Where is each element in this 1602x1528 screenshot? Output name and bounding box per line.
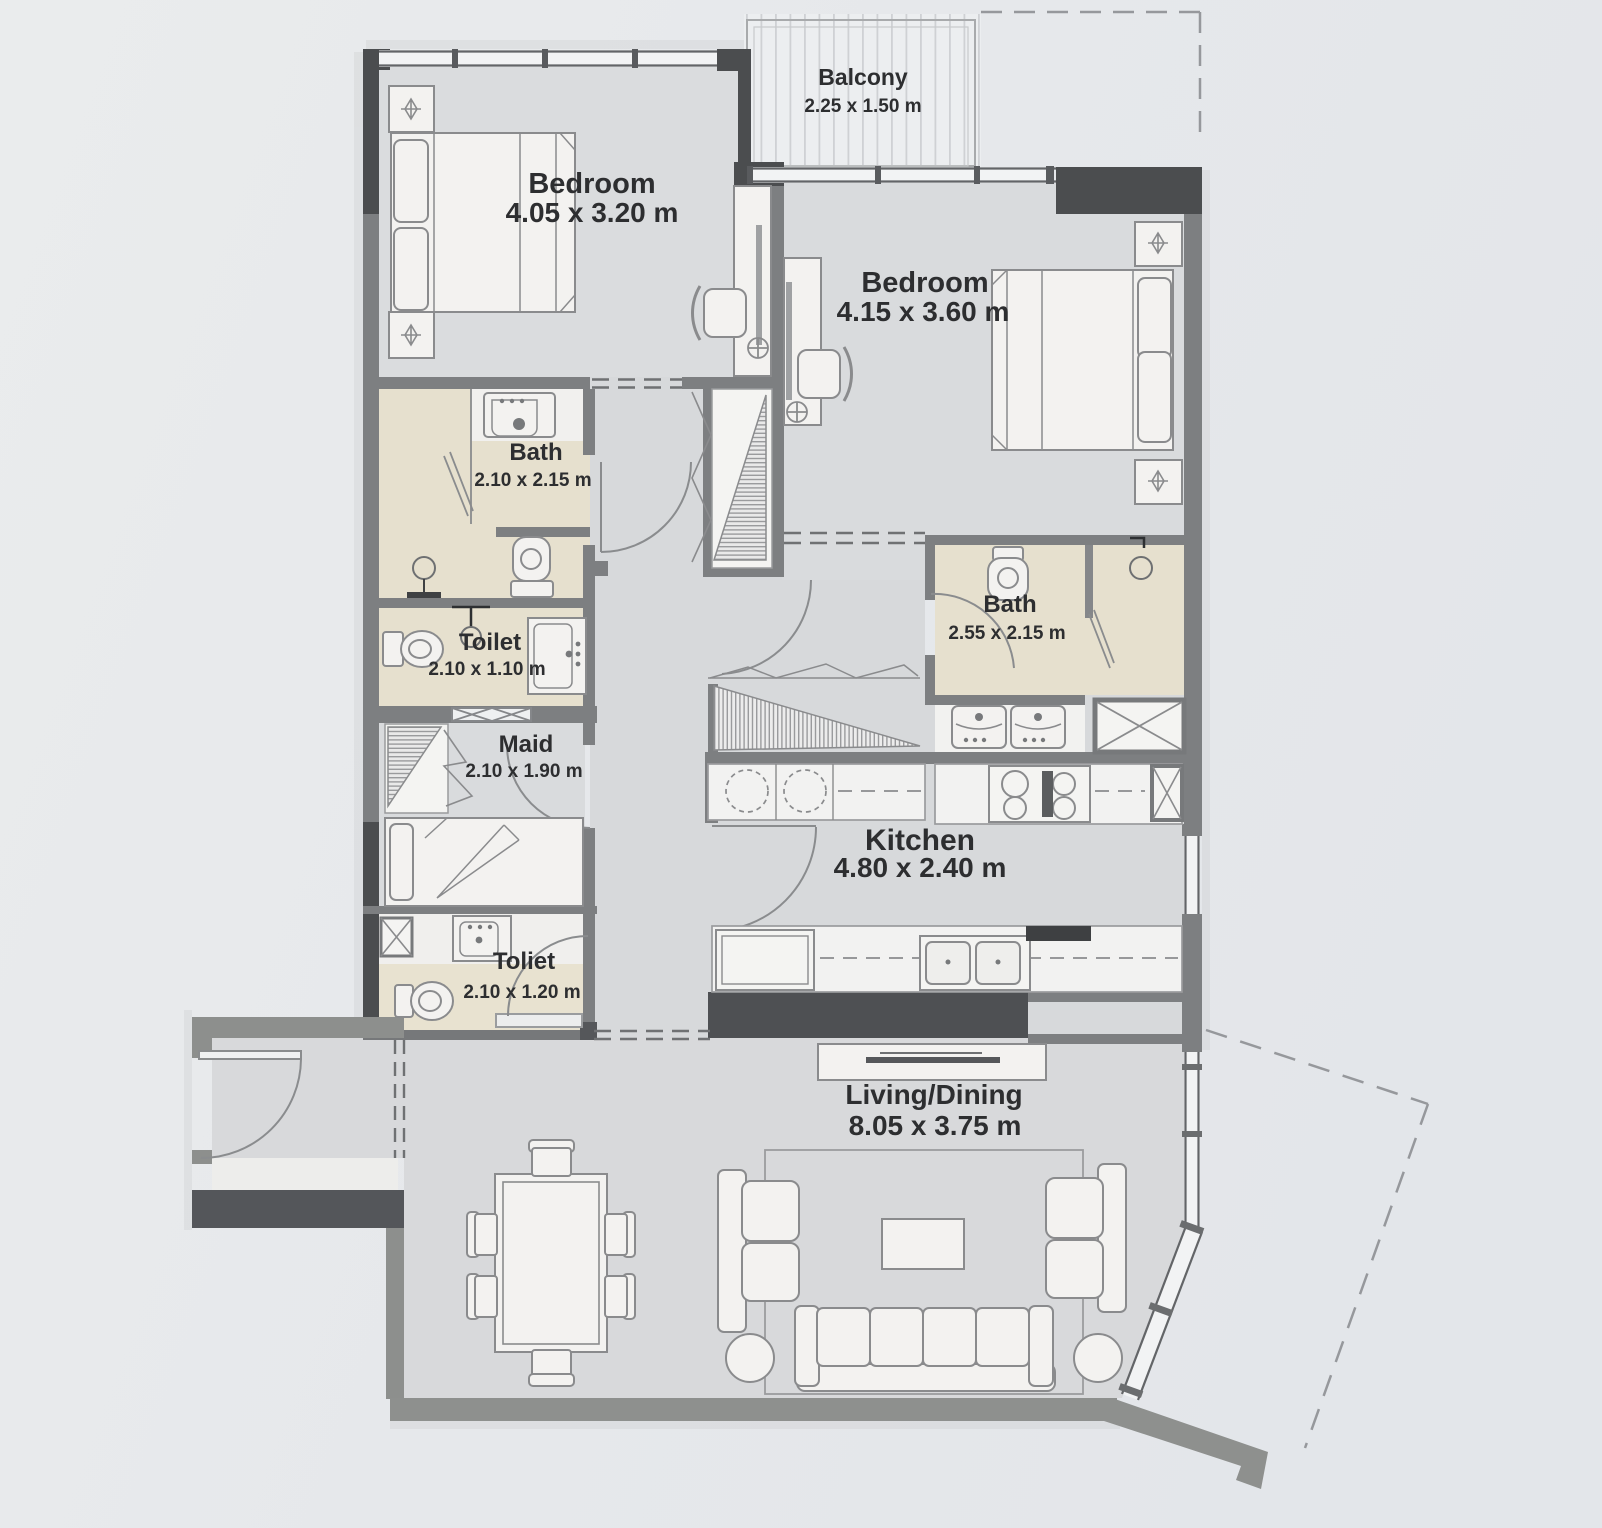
svg-text:2.10 x 1.20 m: 2.10 x 1.20 m [463, 982, 580, 1003]
svg-text:2.25 x 1.50 m: 2.25 x 1.50 m [804, 96, 921, 117]
svg-text:4.05 x 3.20 m: 4.05 x 3.20 m [506, 197, 679, 228]
svg-text:2.10 x 1.90 m: 2.10 x 1.90 m [465, 761, 582, 782]
svg-text:2.10 x 1.10 m: 2.10 x 1.10 m [428, 659, 545, 680]
svg-text:2.10 x 2.15 m: 2.10 x 2.15 m [474, 470, 591, 491]
svg-text:Toliet: Toliet [493, 948, 555, 975]
svg-text:8.05 x 3.75 m: 8.05 x 3.75 m [849, 1110, 1022, 1141]
svg-text:Bedroom: Bedroom [861, 267, 988, 299]
svg-text:Bedroom: Bedroom [528, 168, 655, 200]
svg-text:Maid: Maid [499, 731, 554, 758]
svg-text:4.15 x 3.60 m: 4.15 x 3.60 m [837, 296, 1010, 327]
svg-text:Living/Dining: Living/Dining [845, 1079, 1022, 1110]
svg-text:Balcony: Balcony [818, 64, 908, 90]
svg-text:4.80 x 2.40 m: 4.80 x 2.40 m [834, 852, 1007, 883]
svg-text:Toilet: Toilet [459, 629, 521, 656]
svg-text:2.55 x 2.15 m: 2.55 x 2.15 m [948, 623, 1065, 644]
svg-text:Bath: Bath [983, 591, 1036, 618]
svg-text:Bath: Bath [509, 439, 562, 466]
